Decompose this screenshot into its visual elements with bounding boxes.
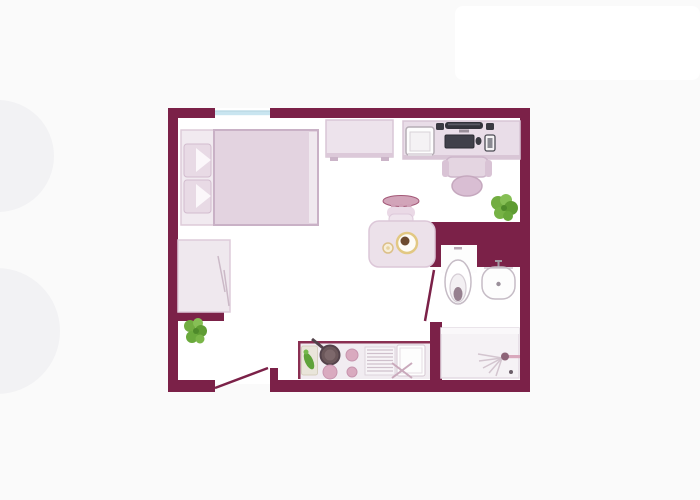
background-circle bbox=[0, 100, 54, 212]
wall-top-right bbox=[270, 108, 530, 118]
wall-bottom-right bbox=[270, 380, 530, 392]
wall-bathroom-lower bbox=[430, 322, 442, 384]
cup-center bbox=[386, 246, 390, 250]
speaker-icon bbox=[486, 123, 494, 130]
dresser-foot bbox=[381, 157, 389, 161]
double-bed bbox=[181, 130, 318, 225]
wardrobe bbox=[178, 240, 230, 312]
wall-left bbox=[168, 108, 178, 392]
stove-burner bbox=[346, 349, 358, 361]
vegetable bbox=[304, 350, 309, 355]
dresser bbox=[326, 120, 393, 161]
stove-burner bbox=[323, 365, 337, 379]
toilet-lid bbox=[454, 287, 463, 301]
frying-pan-center bbox=[325, 350, 336, 361]
mouse-icon bbox=[476, 137, 482, 145]
smartphone-icon bbox=[485, 135, 495, 151]
stove-burner bbox=[347, 367, 357, 377]
shower-tray bbox=[441, 328, 519, 378]
chair-armrest bbox=[442, 160, 449, 177]
dining-table bbox=[369, 221, 435, 267]
background-highlight-box bbox=[455, 6, 700, 80]
plate-food bbox=[401, 237, 410, 246]
chair-seat bbox=[452, 176, 482, 196]
drainboard-grooves bbox=[367, 350, 393, 371]
page-background bbox=[0, 0, 700, 500]
floorplan-illustration bbox=[168, 108, 530, 392]
shower-icon bbox=[441, 328, 520, 378]
basin-drain bbox=[496, 282, 500, 286]
kitchen-counter bbox=[298, 339, 430, 379]
bed-duvet bbox=[214, 130, 318, 225]
shower-head bbox=[501, 353, 509, 361]
shower-drain bbox=[509, 370, 513, 374]
printer-icon bbox=[406, 127, 434, 156]
desk bbox=[403, 121, 520, 159]
speaker-icon bbox=[436, 123, 444, 130]
dresser-foot bbox=[330, 157, 338, 161]
bed-footboard bbox=[309, 132, 317, 223]
wall-door-stub bbox=[270, 368, 278, 392]
wall-bottom-left bbox=[168, 380, 215, 392]
chair-armrest bbox=[485, 160, 492, 177]
window-icon bbox=[215, 108, 270, 118]
toilet-flush-button bbox=[454, 247, 462, 250]
background-circle bbox=[0, 268, 60, 394]
keyboard-icon bbox=[445, 135, 474, 148]
